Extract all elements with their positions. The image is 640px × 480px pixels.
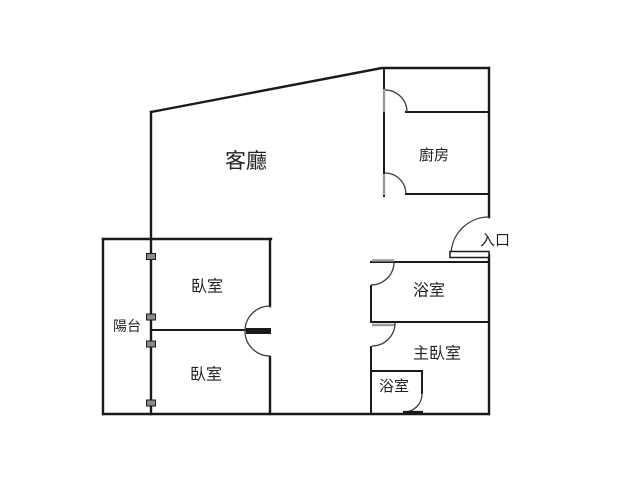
label-master-bedroom: 主臥室 <box>413 344 461 363</box>
label-living-room: 客廳 <box>225 149 267 173</box>
room-labels: 客廳 廚房 入口 浴室 主臥室 浴室 臥室 臥室 陽台 <box>113 146 510 395</box>
label-balcony: 陽台 <box>113 319 141 335</box>
kitchen-upper-door-arc <box>385 90 407 112</box>
wall-post-marker <box>147 341 156 347</box>
master-bath-door-arc <box>404 394 422 412</box>
bathroom-door-arc <box>371 262 394 285</box>
wall-post-marker <box>147 400 156 406</box>
label-master-bathroom: 浴室 <box>379 377 409 395</box>
entrance-door-leaf <box>450 252 489 258</box>
floor-plan-canvas: 客廳 廚房 入口 浴室 主臥室 浴室 臥室 臥室 陽台 <box>0 0 640 480</box>
wall-post-marker <box>147 254 156 260</box>
label-kitchen: 廚房 <box>419 146 449 164</box>
label-bedroom-top: 臥室 <box>191 277 223 296</box>
kitchen-door-arc <box>385 173 406 194</box>
label-bathroom: 浴室 <box>413 281 445 300</box>
label-bedroom-bottom: 臥室 <box>190 365 222 384</box>
label-entrance: 入口 <box>480 231 510 249</box>
wall-post-marker <box>147 314 156 320</box>
master-bedroom-door-arc <box>372 323 395 346</box>
wall-top-diagonal <box>151 68 489 112</box>
doors <box>245 89 489 413</box>
floor-plan-drawing: 客廳 廚房 入口 浴室 主臥室 浴室 臥室 臥室 陽台 <box>0 0 640 480</box>
